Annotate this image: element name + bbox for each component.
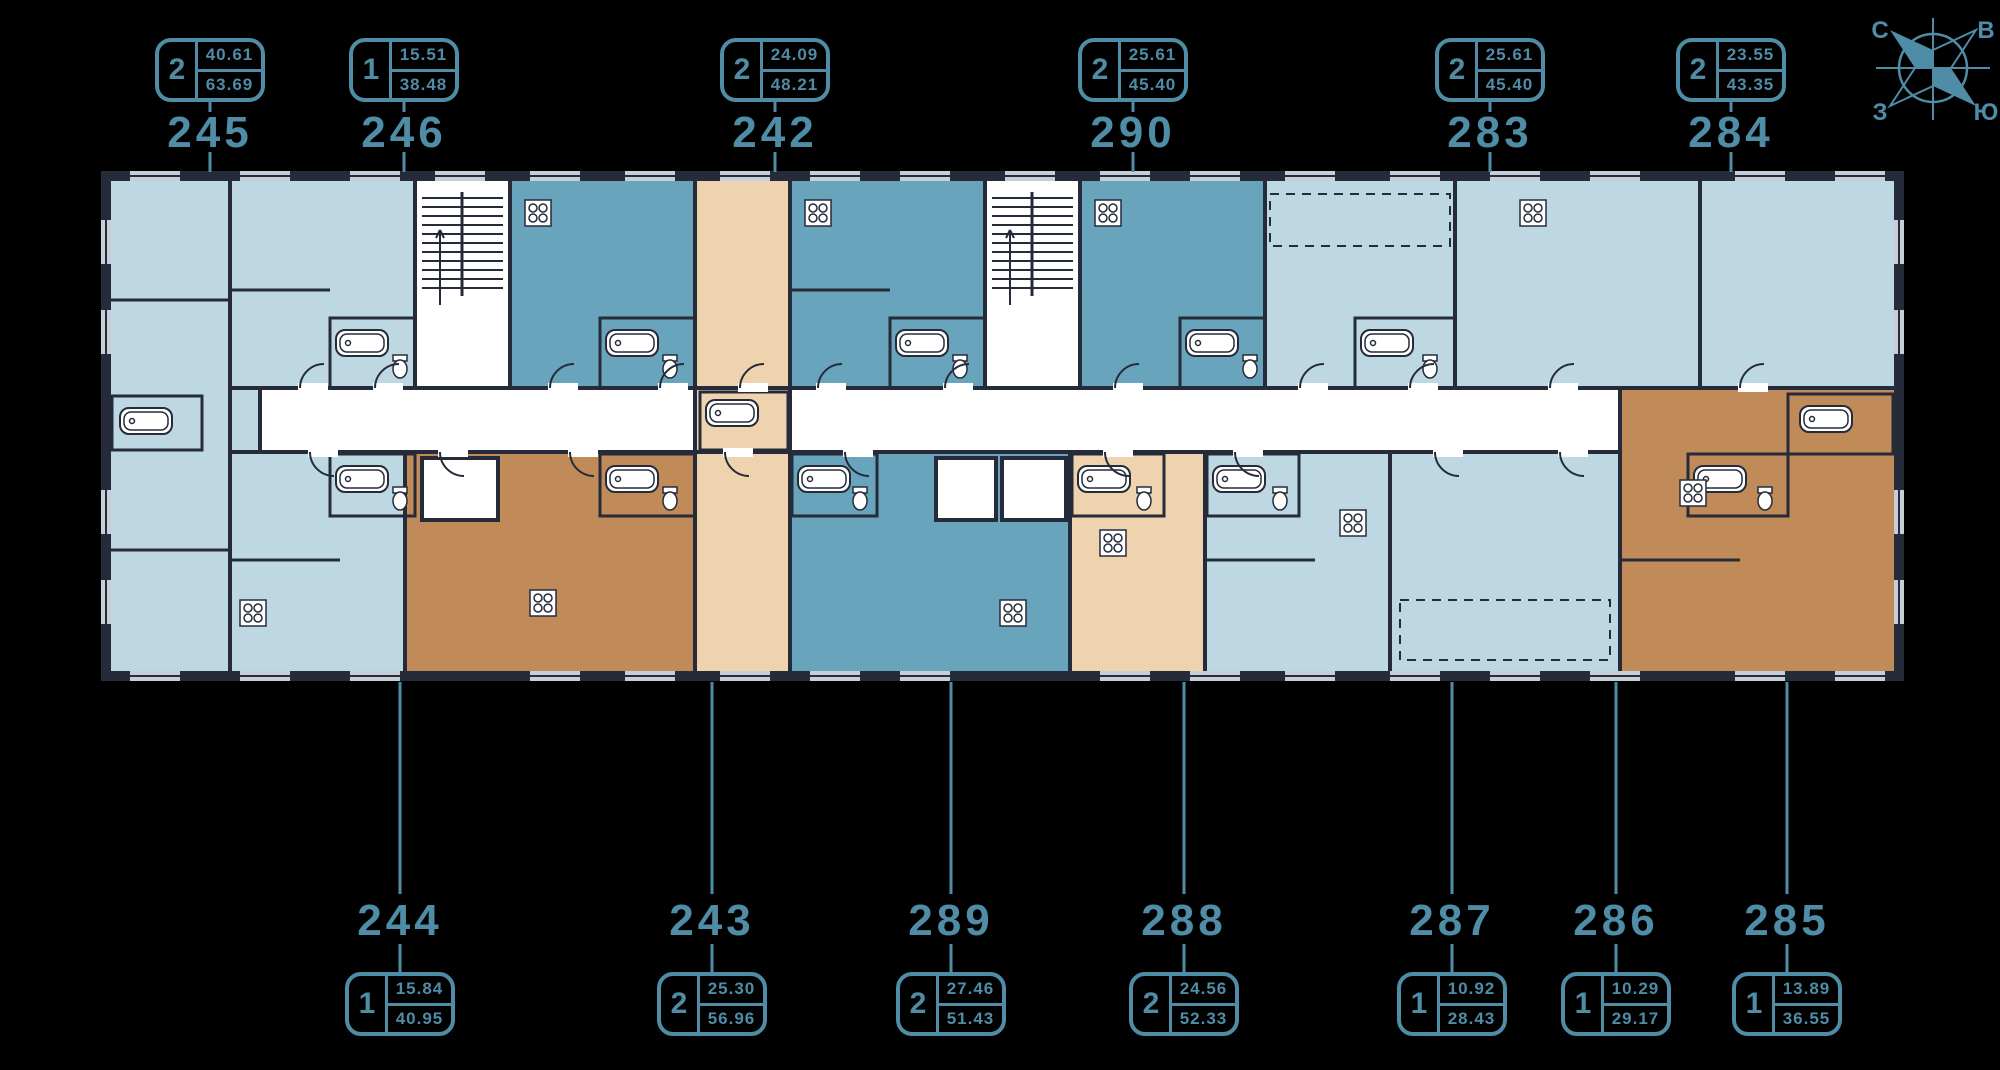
total-area-value: 45.40 — [1121, 72, 1184, 99]
apartment-region-285[interactable] — [1620, 388, 1899, 676]
unit-number-label[interactable]: 286 — [1573, 896, 1658, 946]
area-values: 40.6163.69 — [198, 42, 261, 98]
leader-line — [403, 152, 406, 172]
room-count: 2 — [1133, 976, 1172, 1032]
room-count: 1 — [1565, 976, 1604, 1032]
living-area-value: 10.29 — [1604, 976, 1667, 1006]
leader-line — [1183, 682, 1186, 894]
room-count: 1 — [349, 976, 388, 1032]
leader-line — [1489, 152, 1492, 172]
compass-label-south: Ю — [1974, 99, 1999, 126]
living-area-value: 10.92 — [1440, 976, 1503, 1006]
area-values: 25.3056.96 — [700, 976, 763, 1032]
total-area-value: 48.21 — [763, 72, 826, 99]
total-area-value: 63.69 — [198, 72, 261, 99]
leader-line — [711, 944, 714, 972]
living-area-value: 25.61 — [1478, 42, 1541, 72]
area-values: 10.9228.43 — [1440, 976, 1503, 1032]
area-values: 15.8440.95 — [388, 976, 451, 1032]
floor-plan — [100, 170, 1905, 682]
unit-number-label[interactable]: 242 — [732, 108, 817, 158]
living-area-value: 40.61 — [198, 42, 261, 72]
hall-region — [230, 388, 260, 452]
unit-badge-243[interactable]: 225.3056.96 — [657, 972, 767, 1036]
living-area-value: 24.09 — [763, 42, 826, 72]
total-area-value: 38.48 — [392, 72, 455, 99]
leader-line — [399, 944, 402, 972]
leader-line — [209, 152, 212, 172]
unit-number-label[interactable]: 243 — [669, 896, 754, 946]
living-area-value: 25.61 — [1121, 42, 1184, 72]
leader-line — [1730, 102, 1733, 112]
total-area-value: 36.55 — [1775, 1006, 1838, 1033]
leader-line — [1451, 682, 1454, 894]
total-area-value: 52.33 — [1172, 1006, 1235, 1033]
apartment-region-284b[interactable] — [1700, 176, 1899, 388]
compass-label-north: С — [1871, 17, 1888, 44]
living-area-value: 13.89 — [1775, 976, 1838, 1006]
leader-line — [1132, 152, 1135, 172]
area-values: 15.5138.48 — [392, 42, 455, 98]
unit-badge-246[interactable]: 115.5138.48 — [349, 38, 459, 102]
area-values: 24.0948.21 — [763, 42, 826, 98]
living-area-value: 15.84 — [388, 976, 451, 1006]
unit-badge-285[interactable]: 113.8936.55 — [1732, 972, 1842, 1036]
living-area-value: 24.56 — [1172, 976, 1235, 1006]
leader-line — [1730, 152, 1733, 172]
unit-badge-283[interactable]: 225.6145.40 — [1435, 38, 1545, 102]
apartment-region-246[interactable] — [230, 176, 415, 388]
leader-line — [1786, 944, 1789, 972]
area-values: 25.6145.40 — [1121, 42, 1184, 98]
unit-badge-288[interactable]: 224.5652.33 — [1129, 972, 1239, 1036]
total-area-value: 51.43 — [939, 1006, 1002, 1033]
room-count: 1 — [1736, 976, 1775, 1032]
compass-label-east: В — [1977, 17, 1994, 44]
leader-line — [399, 682, 402, 894]
total-area-value: 45.40 — [1478, 72, 1541, 99]
area-values: 13.8936.55 — [1775, 976, 1838, 1032]
leader-line — [711, 682, 714, 894]
room-count: 2 — [1680, 42, 1719, 98]
unit-badge-242[interactable]: 224.0948.21 — [720, 38, 830, 102]
room-count: 2 — [159, 42, 198, 98]
unit-badge-245[interactable]: 240.6163.69 — [155, 38, 265, 102]
area-values: 10.2929.17 — [1604, 976, 1667, 1032]
total-area-value: 43.35 — [1719, 72, 1782, 99]
total-area-value: 56.96 — [700, 1006, 763, 1033]
living-area-value: 15.51 — [392, 42, 455, 72]
unit-number-label[interactable]: 289 — [908, 896, 993, 946]
room-count: 2 — [661, 976, 700, 1032]
unit-number-label[interactable]: 246 — [361, 108, 446, 158]
leader-line — [1615, 682, 1618, 894]
total-area-value: 40.95 — [388, 1006, 451, 1033]
unit-badge-284[interactable]: 223.5543.35 — [1676, 38, 1786, 102]
compass-rose: С В З Ю — [1858, 8, 2000, 126]
room-count: 2 — [724, 42, 763, 98]
leader-line — [1786, 682, 1789, 894]
leader-line — [1615, 944, 1618, 972]
room-count: 2 — [1439, 42, 1478, 98]
leader-line — [774, 152, 777, 172]
unit-number-label[interactable]: 290 — [1090, 108, 1175, 158]
room-count: 1 — [353, 42, 392, 98]
unit-badge-287[interactable]: 110.9228.43 — [1397, 972, 1507, 1036]
living-area-value: 25.30 — [700, 976, 763, 1006]
leader-line — [1132, 102, 1135, 112]
leader-line — [774, 102, 777, 112]
corridor — [260, 388, 1620, 452]
leader-line — [1183, 944, 1186, 972]
unit-number-label[interactable]: 287 — [1409, 896, 1494, 946]
unit-number-label[interactable]: 244 — [357, 896, 442, 946]
total-area-value: 28.43 — [1440, 1006, 1503, 1033]
area-values: 24.5652.33 — [1172, 976, 1235, 1032]
unit-number-label[interactable]: 285 — [1744, 896, 1829, 946]
leader-line — [950, 944, 953, 972]
room-count: 2 — [1082, 42, 1121, 98]
unit-badge-244[interactable]: 115.8440.95 — [345, 972, 455, 1036]
living-area-value: 27.46 — [939, 976, 1002, 1006]
room-count: 2 — [900, 976, 939, 1032]
leader-line — [950, 682, 953, 894]
apartment-region-284[interactable] — [1455, 176, 1700, 388]
unit-number-label[interactable]: 288 — [1141, 896, 1226, 946]
leader-line — [403, 102, 406, 112]
compass-label-west: З — [1872, 99, 1887, 126]
room-count: 1 — [1401, 976, 1440, 1032]
unit-number-label[interactable]: 283 — [1447, 108, 1532, 158]
unit-badge-289[interactable]: 227.4651.43 — [896, 972, 1006, 1036]
page-background: С В З Ю 240.6163.69245115.5138.48246224.… — [0, 0, 2000, 1070]
unit-badge-286[interactable]: 110.2929.17 — [1561, 972, 1671, 1036]
living-area-value: 23.55 — [1719, 42, 1782, 72]
leader-line — [1489, 102, 1492, 112]
leader-line — [1451, 944, 1454, 972]
unit-number-label[interactable]: 284 — [1688, 108, 1773, 158]
total-area-value: 29.17 — [1604, 1006, 1667, 1033]
leader-line — [209, 102, 212, 112]
unit-badge-290[interactable]: 225.6145.40 — [1078, 38, 1188, 102]
area-values: 27.4651.43 — [939, 976, 1002, 1032]
area-values: 25.6145.40 — [1478, 42, 1541, 98]
apartment-region-286b[interactable] — [1390, 452, 1620, 676]
unit-number-label[interactable]: 245 — [167, 108, 252, 158]
area-values: 23.5543.35 — [1719, 42, 1782, 98]
